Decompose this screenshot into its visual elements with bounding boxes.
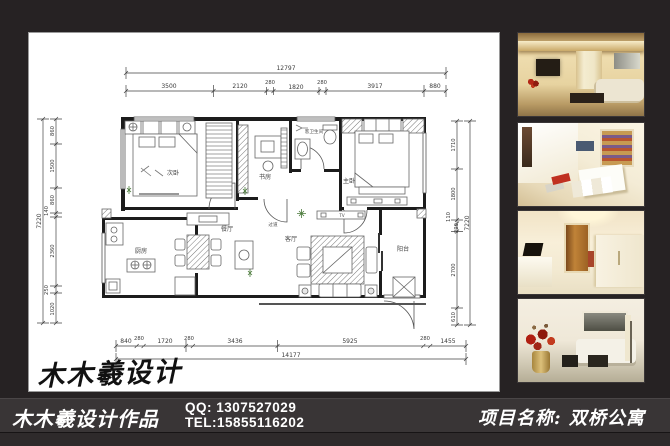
photo4-flowers (524, 319, 558, 353)
svg-text:14177: 14177 (281, 352, 300, 359)
svg-text:1455: 1455 (440, 338, 455, 345)
contact-info: QQ: 1307527029 TEL:15855116202 (185, 400, 304, 430)
svg-text:280: 280 (317, 80, 327, 86)
label-study: 书房 (259, 173, 271, 181)
label-balcony: 阳台 (397, 245, 409, 253)
svg-text:1020: 1020 (50, 302, 56, 315)
photo3-cabinet-handle (618, 251, 620, 265)
footer-lower-strip (0, 433, 670, 446)
photo-dining-area (518, 123, 644, 206)
svg-text:12797: 12797 (276, 65, 295, 72)
svg-text:610: 610 (451, 312, 457, 322)
living-furniture (297, 209, 377, 297)
study-furniture (238, 125, 287, 195)
svg-text:7220: 7220 (464, 215, 471, 230)
bed2-furniture (125, 121, 232, 198)
photo4-coffee-tables (562, 355, 614, 367)
photo1-flowers (526, 77, 540, 89)
svg-text:250: 250 (44, 285, 50, 295)
photo-entry-hallway (518, 211, 644, 294)
svg-text:2360: 2360 (50, 244, 56, 257)
label-bed2: 次卧 (167, 169, 179, 177)
svg-text:280: 280 (184, 336, 194, 342)
designer-signature: 木木羲设计 (36, 349, 182, 393)
photo2-cabinet (522, 127, 532, 167)
photo-living-room-tv-wall (518, 33, 644, 116)
photo-living-room-flowers (518, 299, 644, 382)
svg-text:3500: 3500 (161, 83, 176, 90)
studio-name: 木木羲设计作品 (12, 403, 159, 432)
svg-text:7220: 7220 (36, 213, 43, 228)
photo4-artwork (584, 313, 626, 331)
svg-text:860: 860 (50, 195, 56, 205)
tel-number: TEL:15855116202 (185, 415, 304, 430)
photo3-wood-door (566, 225, 588, 271)
svg-text:110: 110 (446, 212, 452, 222)
photo4-floor-lamp (630, 321, 632, 363)
dimension-labels: 12797 3500 2120 280 1820 280 3917 880 72… (36, 65, 471, 359)
svg-text:840: 840 (120, 338, 132, 345)
balcony-slider (378, 233, 383, 271)
label-hall: 过道 (268, 221, 278, 228)
label-tv: TV (338, 213, 344, 218)
svg-text:280: 280 (265, 80, 275, 86)
svg-text:1720: 1720 (157, 338, 172, 345)
svg-text:880: 880 (429, 83, 441, 90)
project-name: 项目名称: 双桥公寓 (478, 404, 645, 430)
photo3-cabinet (596, 235, 644, 287)
label-bath: 客卫生间 (305, 128, 324, 135)
svg-text:2700: 2700 (451, 263, 457, 276)
label-living: 客厅 (285, 235, 297, 243)
svg-text:1500: 1500 (50, 159, 56, 172)
footer-band: 木木羲设计作品 QQ: 1307527029 TEL:15855116202 项… (0, 398, 670, 434)
photo1-coffee-table (570, 93, 604, 103)
photo1-artwork (614, 53, 640, 69)
photo3-desk (518, 257, 552, 287)
svg-text:3917: 3917 (367, 83, 382, 90)
svg-text:1820: 1820 (288, 84, 303, 91)
master-furniture (342, 119, 424, 205)
svg-text:860: 860 (50, 126, 56, 136)
svg-text:140: 140 (44, 206, 50, 216)
svg-text:1710: 1710 (451, 138, 457, 151)
qq-number: QQ: 1307527029 (185, 400, 304, 415)
label-master: 主卧 (343, 177, 355, 185)
photo3-laptop (523, 243, 544, 256)
photo1-tv (536, 59, 560, 76)
design-board: { "colors":{"background":"#262223","foot… (0, 0, 670, 446)
photo2-artwork (602, 131, 632, 165)
photo3-vase (588, 251, 594, 267)
label-kitchen: 厨房 (135, 247, 147, 255)
svg-text:290: 290 (454, 223, 460, 233)
svg-text:2120: 2120 (232, 83, 247, 90)
svg-text:1800: 1800 (451, 187, 457, 200)
photo2-picture (576, 141, 594, 151)
svg-text:3436: 3436 (227, 338, 242, 345)
floor-plan: 次卧 书房 客卫生间 主卧 厨房 餐厅 过道 客厅 阳台 TV 12797 35… (29, 33, 499, 391)
dining-furniture (175, 213, 253, 277)
floor-plan-sheet: 次卧 书房 客卫生间 主卧 厨房 餐厅 过道 客厅 阳台 TV 12797 35… (28, 32, 500, 392)
label-dining: 餐厅 (221, 225, 233, 233)
svg-text:280: 280 (134, 336, 144, 342)
svg-text:5925: 5925 (342, 338, 357, 345)
svg-text:280: 280 (420, 336, 430, 342)
photo4-vase (532, 351, 550, 373)
photo1-ceiling (518, 41, 644, 51)
entry-door (384, 301, 414, 329)
